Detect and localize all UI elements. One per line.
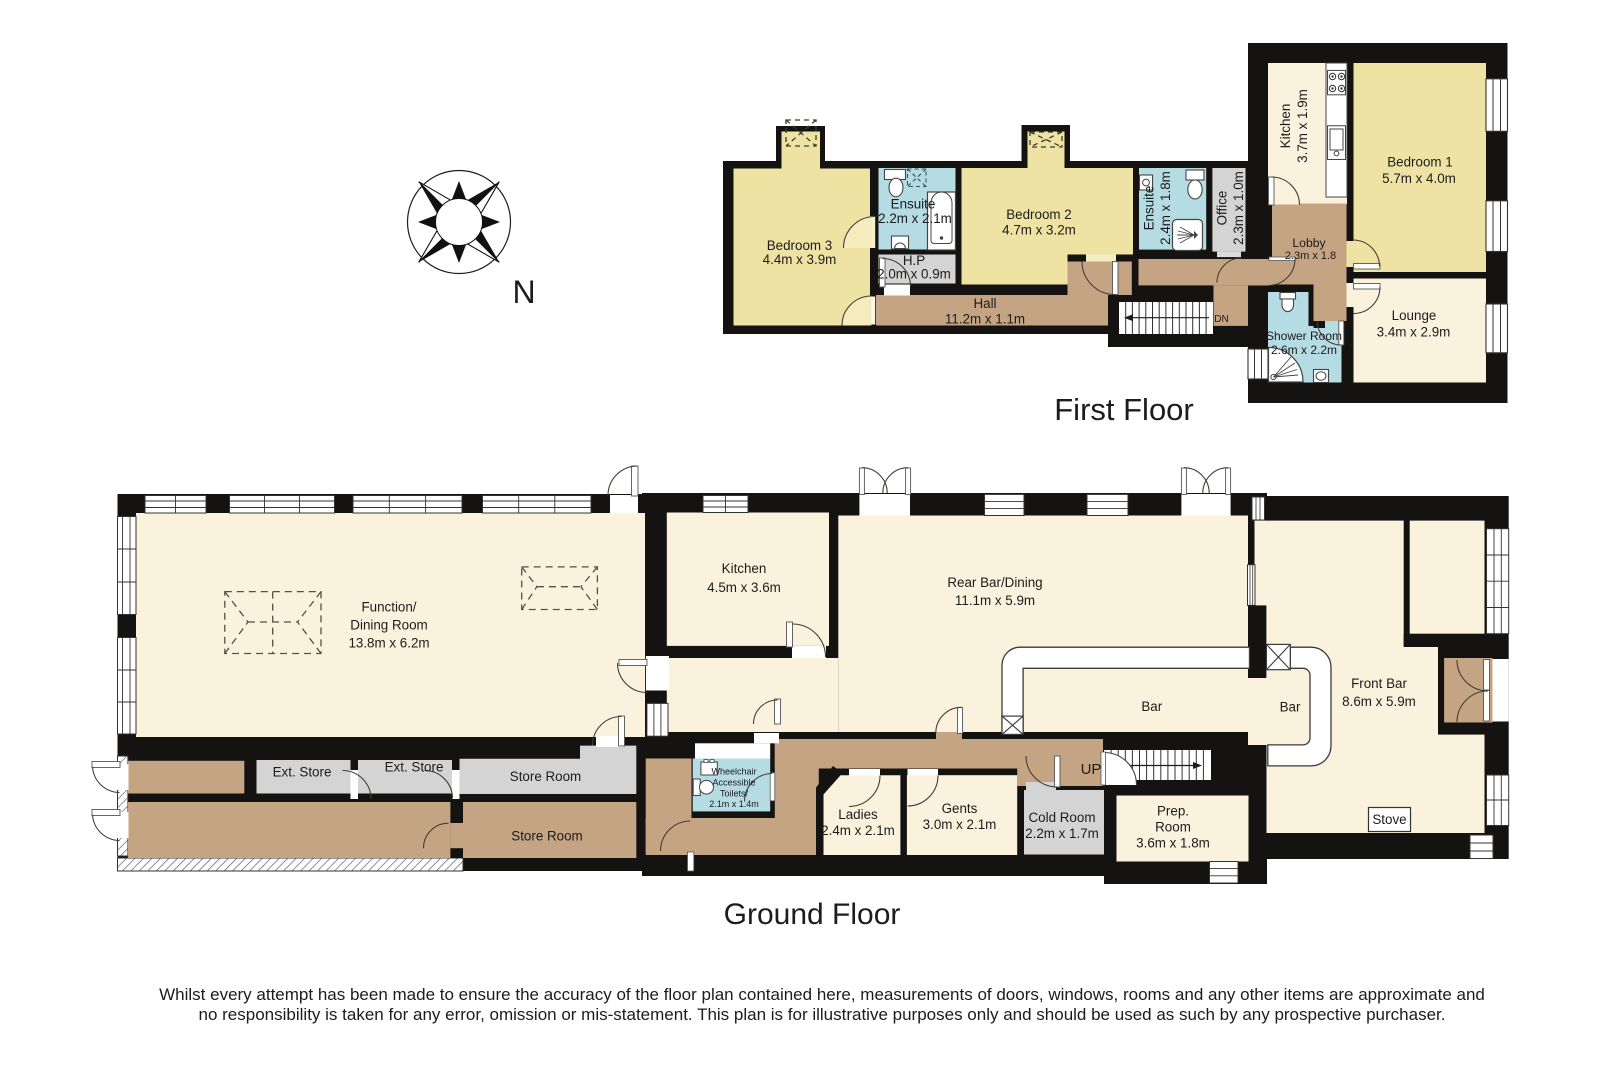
svg-text:Wheelchair: Wheelchair — [711, 767, 756, 777]
svg-text:4.5m x 3.6m: 4.5m x 3.6m — [707, 580, 781, 595]
svg-text:4.7m x 3.2m: 4.7m x 3.2m — [1002, 223, 1076, 238]
svg-text:3.6m x 1.8m: 3.6m x 1.8m — [1136, 836, 1210, 851]
svg-text:Ext. Store: Ext. Store — [273, 765, 332, 780]
svg-text:2.3m x 1.0m: 2.3m x 1.0m — [1231, 171, 1246, 245]
svg-text:Hall: Hall — [973, 296, 996, 311]
svg-text:13.8m x 6.2m: 13.8m x 6.2m — [348, 636, 429, 651]
svg-text:no responsibility is taken for: no responsibility is taken for any error… — [199, 1005, 1446, 1024]
svg-text:Accessible: Accessible — [712, 778, 755, 788]
svg-text:Lounge: Lounge — [1392, 308, 1437, 323]
svg-text:2.1m x 1.4m: 2.1m x 1.4m — [709, 799, 759, 809]
svg-text:11.1m x 5.9m: 11.1m x 5.9m — [955, 593, 1035, 608]
svg-text:Function/: Function/ — [361, 600, 416, 615]
svg-text:Bedroom 1: Bedroom 1 — [1387, 155, 1453, 170]
svg-text:Rear Bar/Dining: Rear Bar/Dining — [947, 575, 1042, 590]
svg-text:Office: Office — [1215, 191, 1230, 226]
svg-text:2.0m x 0.9m: 2.0m x 0.9m — [877, 267, 951, 282]
svg-text:Store Room: Store Room — [510, 769, 581, 784]
svg-text:2.4m x 1.8m: 2.4m x 1.8m — [1158, 171, 1173, 245]
svg-text:2.2m x 2.1m: 2.2m x 2.1m — [878, 211, 952, 226]
svg-text:2.2m x 1.7m: 2.2m x 1.7m — [1025, 826, 1099, 841]
svg-text:Front Bar: Front Bar — [1351, 676, 1407, 691]
svg-text:4.4m x 3.9m: 4.4m x 3.9m — [763, 252, 837, 267]
svg-text:Ground Floor: Ground Floor — [724, 898, 901, 931]
svg-text:UP: UP — [1081, 761, 1102, 778]
svg-text:Toilets/: Toilets/ — [720, 789, 749, 799]
svg-text:Bedroom 2: Bedroom 2 — [1006, 207, 1072, 222]
svg-text:Room: Room — [1155, 820, 1191, 835]
svg-text:3.4m x 2.9m: 3.4m x 2.9m — [1377, 325, 1451, 340]
svg-text:Prep.: Prep. — [1157, 804, 1189, 819]
svg-text:Ladies: Ladies — [838, 807, 878, 822]
svg-text:Bedroom 3: Bedroom 3 — [767, 238, 833, 253]
svg-text:2.3m x 1.8: 2.3m x 1.8 — [1285, 250, 1336, 262]
svg-text:First Floor: First Floor — [1054, 392, 1194, 427]
svg-text:Whilst every attempt has been: Whilst every attempt has been made to en… — [159, 985, 1485, 1004]
svg-text:Bar: Bar — [1141, 699, 1162, 714]
svg-text:Bar: Bar — [1280, 700, 1301, 715]
svg-text:Shower Room: Shower Room — [1266, 329, 1342, 343]
svg-text:Stove: Stove — [1372, 812, 1406, 827]
svg-text:Ensuite: Ensuite — [1142, 186, 1157, 231]
svg-text:3.7m x 1.9m: 3.7m x 1.9m — [1295, 89, 1310, 163]
svg-text:Ext. Store: Ext. Store — [385, 760, 444, 775]
svg-text:Kitchen: Kitchen — [722, 561, 767, 576]
svg-text:Lobby: Lobby — [1292, 236, 1326, 250]
svg-text:2.4m x 2.1m: 2.4m x 2.1m — [821, 823, 895, 838]
svg-text:Store Room: Store Room — [511, 829, 582, 844]
svg-text:5.7m x 4.0m: 5.7m x 4.0m — [1382, 171, 1456, 186]
svg-text:Kitchen: Kitchen — [1278, 104, 1293, 149]
svg-text:DN: DN — [1214, 314, 1228, 325]
svg-text:3.0m x 2.1m: 3.0m x 2.1m — [923, 817, 997, 832]
svg-text:Gents: Gents — [942, 801, 978, 816]
svg-text:Ensuite: Ensuite — [891, 197, 936, 212]
svg-text:Dining Room: Dining Room — [350, 618, 427, 633]
svg-text:N: N — [512, 274, 535, 310]
svg-text:11.2m x 1.1m: 11.2m x 1.1m — [945, 312, 1025, 327]
svg-text:8.6m x 5.9m: 8.6m x 5.9m — [1342, 694, 1416, 709]
svg-text:2.6m x 2.2m: 2.6m x 2.2m — [1271, 343, 1337, 357]
svg-text:Cold Room: Cold Room — [1029, 810, 1096, 825]
